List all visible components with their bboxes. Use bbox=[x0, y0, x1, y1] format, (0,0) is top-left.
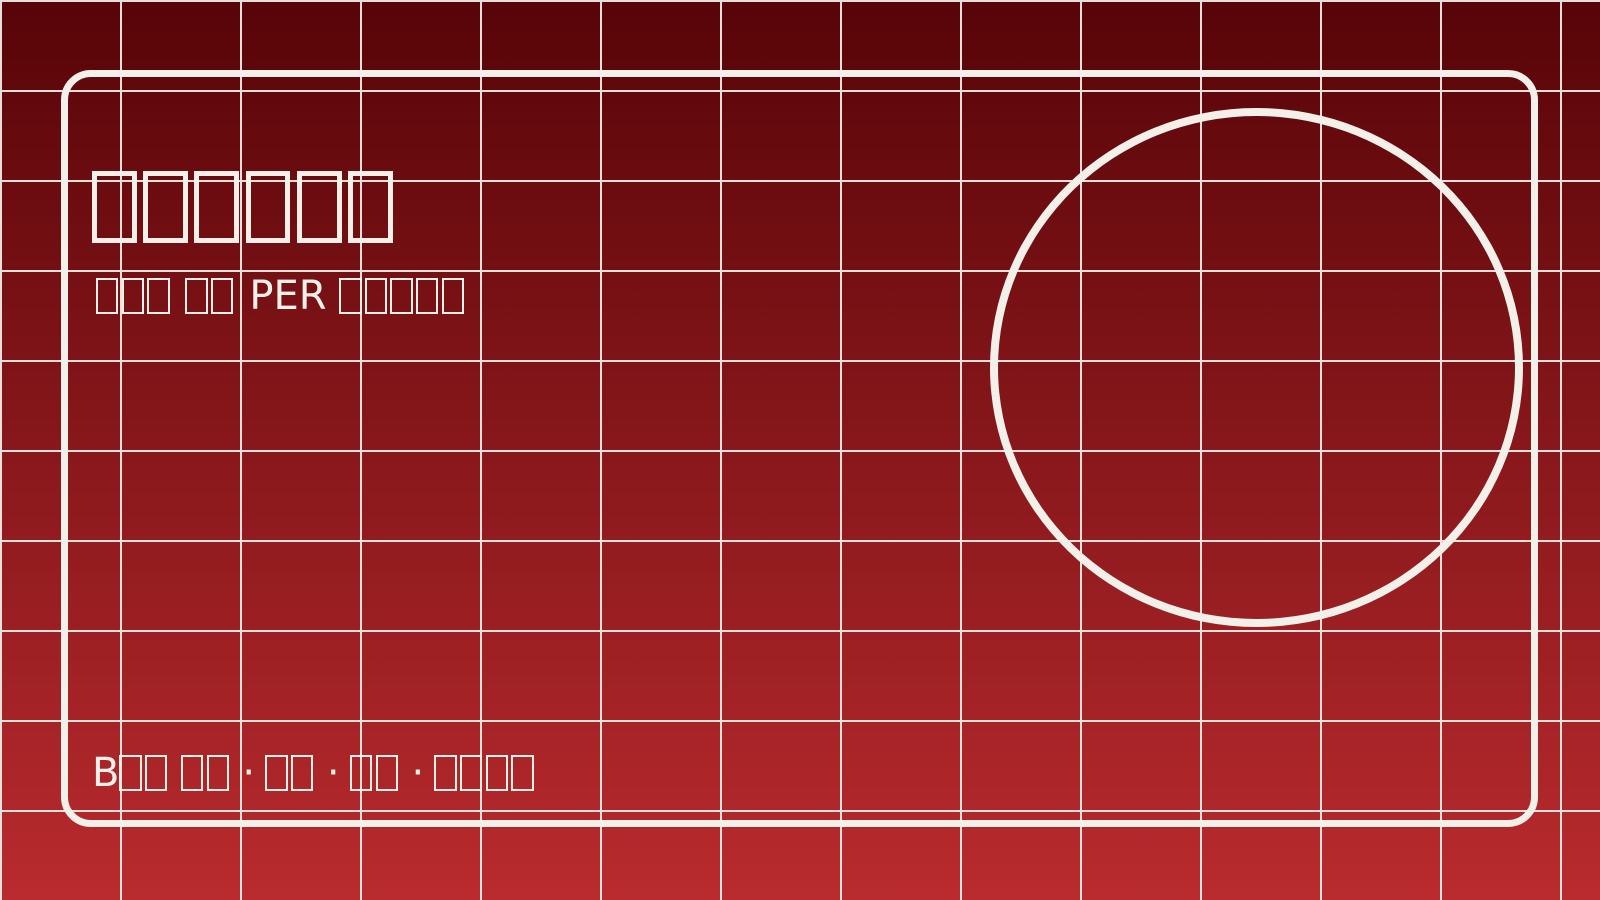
tofu-glyph bbox=[376, 755, 398, 791]
tofu-glyph bbox=[442, 278, 464, 314]
tofu-glyph bbox=[207, 755, 229, 791]
slide-subtitle: PER bbox=[96, 272, 467, 320]
tofu-glyph bbox=[365, 278, 387, 314]
tofu-glyph bbox=[92, 171, 137, 243]
tofu-glyph bbox=[291, 755, 313, 791]
tofu-glyph bbox=[350, 755, 372, 791]
tofu-glyph bbox=[185, 278, 207, 314]
tofu-glyph bbox=[460, 755, 482, 791]
tofu-glyph bbox=[194, 171, 239, 243]
tofu-glyph bbox=[122, 278, 144, 314]
slide-footer: B · · · bbox=[92, 749, 537, 797]
tofu-glyph bbox=[145, 755, 167, 791]
tofu-glyph bbox=[181, 755, 203, 791]
tofu-glyph bbox=[147, 278, 169, 314]
tofu-glyph bbox=[486, 755, 508, 791]
tofu-glyph bbox=[339, 278, 361, 314]
tofu-glyph bbox=[434, 755, 456, 791]
tofu-glyph bbox=[390, 278, 412, 314]
decorative-circle bbox=[990, 108, 1523, 627]
tofu-glyph bbox=[416, 278, 438, 314]
tofu-glyph bbox=[265, 755, 287, 791]
tofu-glyph bbox=[211, 278, 233, 314]
tofu-glyph bbox=[348, 171, 393, 243]
slide-title bbox=[92, 162, 399, 250]
tofu-glyph bbox=[246, 171, 291, 243]
tofu-glyph bbox=[511, 755, 533, 791]
tofu-glyph bbox=[119, 755, 141, 791]
tofu-glyph bbox=[96, 278, 118, 314]
tofu-glyph bbox=[143, 171, 188, 243]
tofu-glyph bbox=[297, 171, 342, 243]
slide-canvas: PER B · · · bbox=[0, 0, 1600, 900]
